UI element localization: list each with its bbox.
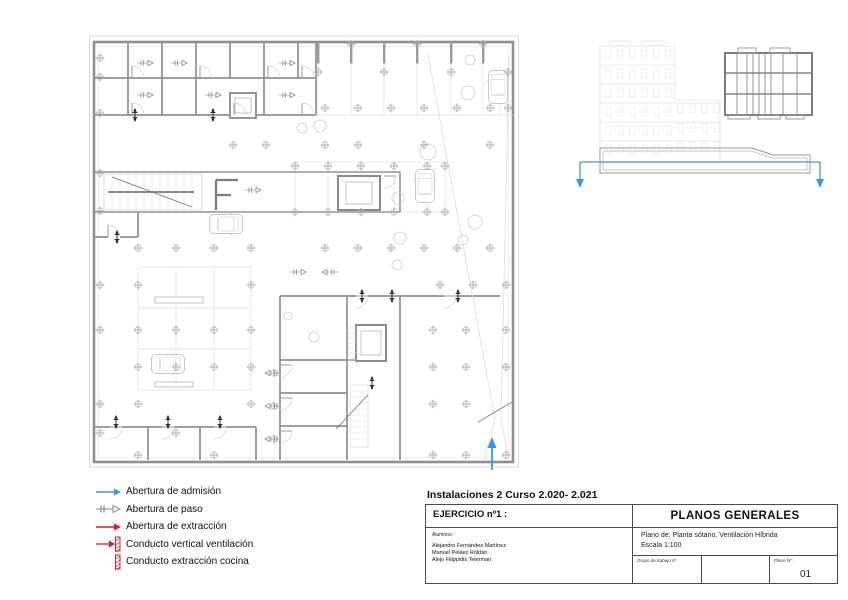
stair-core-bottom [336,325,386,447]
passage-symbol [205,92,221,98]
admission-path-section [576,162,824,188]
column-marker [462,326,471,335]
floor-circle [309,332,319,342]
column-marker [134,326,143,335]
passage-symbol [245,187,261,193]
door-swing [280,398,292,410]
column-marker [172,429,181,438]
column-marker [134,363,143,372]
passage-symbol [137,92,153,98]
student-name: Alejo Filippidis Telerman [432,557,632,564]
column-marker [453,244,462,253]
plan-description-cell: Plano de: Planta sótano. Ventilación Híb… [633,528,837,556]
column-marker [429,400,438,409]
column-marker [262,141,271,150]
window [630,145,635,154]
floor-circle [297,123,307,133]
student-name: Manuel Peláez Roldán [432,550,632,557]
floor-circle [420,144,436,160]
window [690,104,695,113]
window [618,126,623,135]
window [654,145,659,154]
window [702,123,707,132]
passage-symbol [137,60,153,66]
kitchen-extraction-duct-icon [95,554,122,570]
sheet-number-label: Plano Nº: [774,558,837,563]
section-elevation-drawing [570,28,840,198]
door-swing [302,103,314,115]
column-marker [134,400,143,409]
column-marker [210,451,219,460]
window [618,107,623,116]
drawing-sheet: { "colors": { "accent_blue": "#3b96e8", … [0,0,848,600]
window [702,104,707,113]
column-marker [96,326,105,335]
building-section [725,48,812,119]
passage-symbol [322,269,338,275]
door-swing [268,66,280,78]
floor-circle [461,86,475,100]
column-marker [210,326,219,335]
column-marker [502,363,511,372]
column-marker [172,244,181,253]
legend: Abertura de admisión Abertura de paso Ab… [95,483,253,571]
window [654,126,659,135]
column-marker [462,451,471,460]
column-marker [134,244,143,253]
column-marker [96,54,105,63]
elevation-windows [606,50,719,154]
window [618,88,623,97]
column-marker [324,208,333,217]
window [618,50,623,59]
passage-symbol [265,403,281,409]
students-cell: Alumnos: Alejandro Fernández Martínez Ma… [426,528,632,583]
window [666,107,671,116]
vertical-duct-icon [95,536,122,552]
legend-label: Abertura de extracción [126,521,227,532]
parking-bay-lines [138,64,513,390]
passage-symbol [279,60,295,66]
legend-item-admission: Abertura de admisión [95,483,253,501]
column-marker [247,400,256,409]
column-marker [247,244,256,253]
window [678,142,683,151]
window [714,123,719,132]
column-marker [291,208,300,217]
student-name: Alejandro Fernández Martínez [432,543,632,550]
column-marker [387,104,396,113]
column-marker [429,363,438,372]
door-swing [108,225,120,237]
column-marker [291,162,300,171]
legend-label: Abertura de paso [126,504,203,515]
column-marker [420,104,429,113]
column-marker [390,208,399,217]
window [606,107,611,116]
title-block-table: EJERCICIO nº1 : Alumnos: Alejandro Ferná… [425,504,838,584]
door-swing [302,66,314,78]
column-marker [96,281,105,290]
cars [152,71,509,375]
window [642,145,647,154]
ventilation-opening-symbols [114,108,461,429]
column-marker [436,281,445,290]
floor-plan-drawing [88,33,520,470]
partition-walls [94,212,500,460]
door-swing [280,431,292,443]
column-marker [447,68,456,77]
vehicle-ramp [428,55,512,460]
column-marker [314,68,323,77]
column-grid-markers [96,40,513,460]
window [630,50,635,59]
column-marker [453,104,462,113]
column-marker [357,162,366,171]
work-group-label: Grupo de trabajo nº: [637,558,701,563]
floor-circle [468,215,482,229]
column-marker [96,73,105,82]
sheet-number: 01 [774,569,837,580]
window [714,104,719,113]
legend-item-vertical-duct: Conducto vertical ventilación [95,536,253,554]
plan-description: Plano de: Planta sótano. Ventilación Híb… [641,531,837,541]
extraction-arrow-icon [95,519,122,535]
window [630,88,635,97]
passage-symbol [265,370,281,376]
window [654,69,659,78]
column-marker [247,363,256,372]
floor-circle [465,55,475,65]
column-marker [502,281,511,290]
column-marker [429,326,438,335]
column-marker [354,244,363,253]
window [642,50,647,59]
passage-symbol [171,60,187,66]
plan-outline [90,36,519,467]
column-marker [96,400,105,409]
title-block-bottom-row: Grupo de trabajo nº: Plano Nº: 01 [633,556,837,583]
column-marker [462,363,471,372]
window [678,104,683,113]
window [630,69,635,78]
window [690,123,695,132]
window [606,50,611,59]
window [666,145,671,154]
window [654,88,659,97]
admission-arrow-icon [95,484,122,500]
column-marker [134,281,143,290]
legend-item-passage: Abertura de paso [95,501,253,519]
column-marker [172,326,181,335]
column-marker [504,104,513,113]
window [618,69,623,78]
door-swing [132,103,144,115]
column-marker [486,141,495,150]
legend-label: Abertura de admisión [126,486,221,497]
vent-symbol [370,376,375,390]
window [618,145,623,154]
work-group-cell: Grupo de trabajo nº: [633,556,701,583]
basement-section [600,148,810,173]
floor-circle [392,260,402,270]
legend-label: Conducto extracción cocina [126,556,249,567]
legend-item-kitchen-duct: Conducto extracción cocina [95,553,253,571]
column-marker [96,207,105,216]
column-marker [354,141,363,150]
column-marker [324,162,333,171]
stair-core-strip [94,172,400,212]
column-marker [420,244,429,253]
column-marker [354,104,363,113]
plan-scale: Escala 1:100 [641,541,837,551]
column-marker [210,244,219,253]
column-marker [229,141,238,150]
column-marker [429,451,438,460]
column-marker [321,244,330,253]
passage-symbol [290,269,306,275]
window [666,126,671,135]
door-swing [444,296,456,308]
passage-symbol [279,92,295,98]
column-marker [96,109,105,118]
window [690,142,695,151]
window [666,50,671,59]
window [606,145,611,154]
column-marker [96,169,105,178]
column-marker [96,429,105,438]
column-marker [247,281,256,290]
door-swing [280,365,292,377]
passage-arrow-icon [95,501,122,517]
column-marker [441,208,450,217]
window [654,107,659,116]
column-marker [502,451,511,460]
sheet-title: PLANOS GENERALES [633,505,837,528]
column-marker [462,400,471,409]
column-marker [486,104,495,113]
students-label: Alumnos: [432,532,632,538]
column-marker [321,141,330,150]
exercise-label: EJERCICIO nº1 : [426,505,632,528]
window [666,69,671,78]
door-swing [200,66,212,78]
floor-circle [284,312,292,320]
window [606,88,611,97]
floor-circle [394,232,406,244]
window [642,107,647,116]
window [666,88,671,97]
legend-item-extraction: Abertura de extracción [95,518,253,536]
title-block-left: EJERCICIO nº1 : Alumnos: Alejandro Ferná… [426,505,633,583]
window [714,142,719,151]
column-marker [247,326,256,335]
window [606,69,611,78]
column-marker [210,363,219,372]
window [642,88,647,97]
floor-circle [314,120,326,132]
window [654,50,659,59]
title-block: Instalaciones 2 Curso 2.020- 2.021 EJERC… [425,489,838,584]
empty-cell [701,556,769,583]
window [630,107,635,116]
window [630,126,635,135]
column-marker [321,104,330,113]
column-marker [387,244,396,253]
window [606,126,611,135]
window [642,126,647,135]
sheet-number-cell: Plano Nº: 01 [769,556,837,583]
window [642,69,647,78]
column-marker [390,162,399,171]
column-marker [423,208,432,217]
column-marker [486,244,495,253]
window [702,142,707,151]
column-marker [380,68,389,77]
storage-rooms-top [94,42,316,115]
window [678,123,683,132]
column-marker [134,451,143,460]
title-block-right: PLANOS GENERALES Plano de: Planta sótano… [633,505,837,583]
passage-symbol [265,436,281,442]
legend-label: Conducto vertical ventilación [126,539,253,550]
plan-circles [284,55,482,342]
course-title: Instalaciones 2 Curso 2.020- 2.021 [427,489,838,501]
door-swing [132,66,144,78]
